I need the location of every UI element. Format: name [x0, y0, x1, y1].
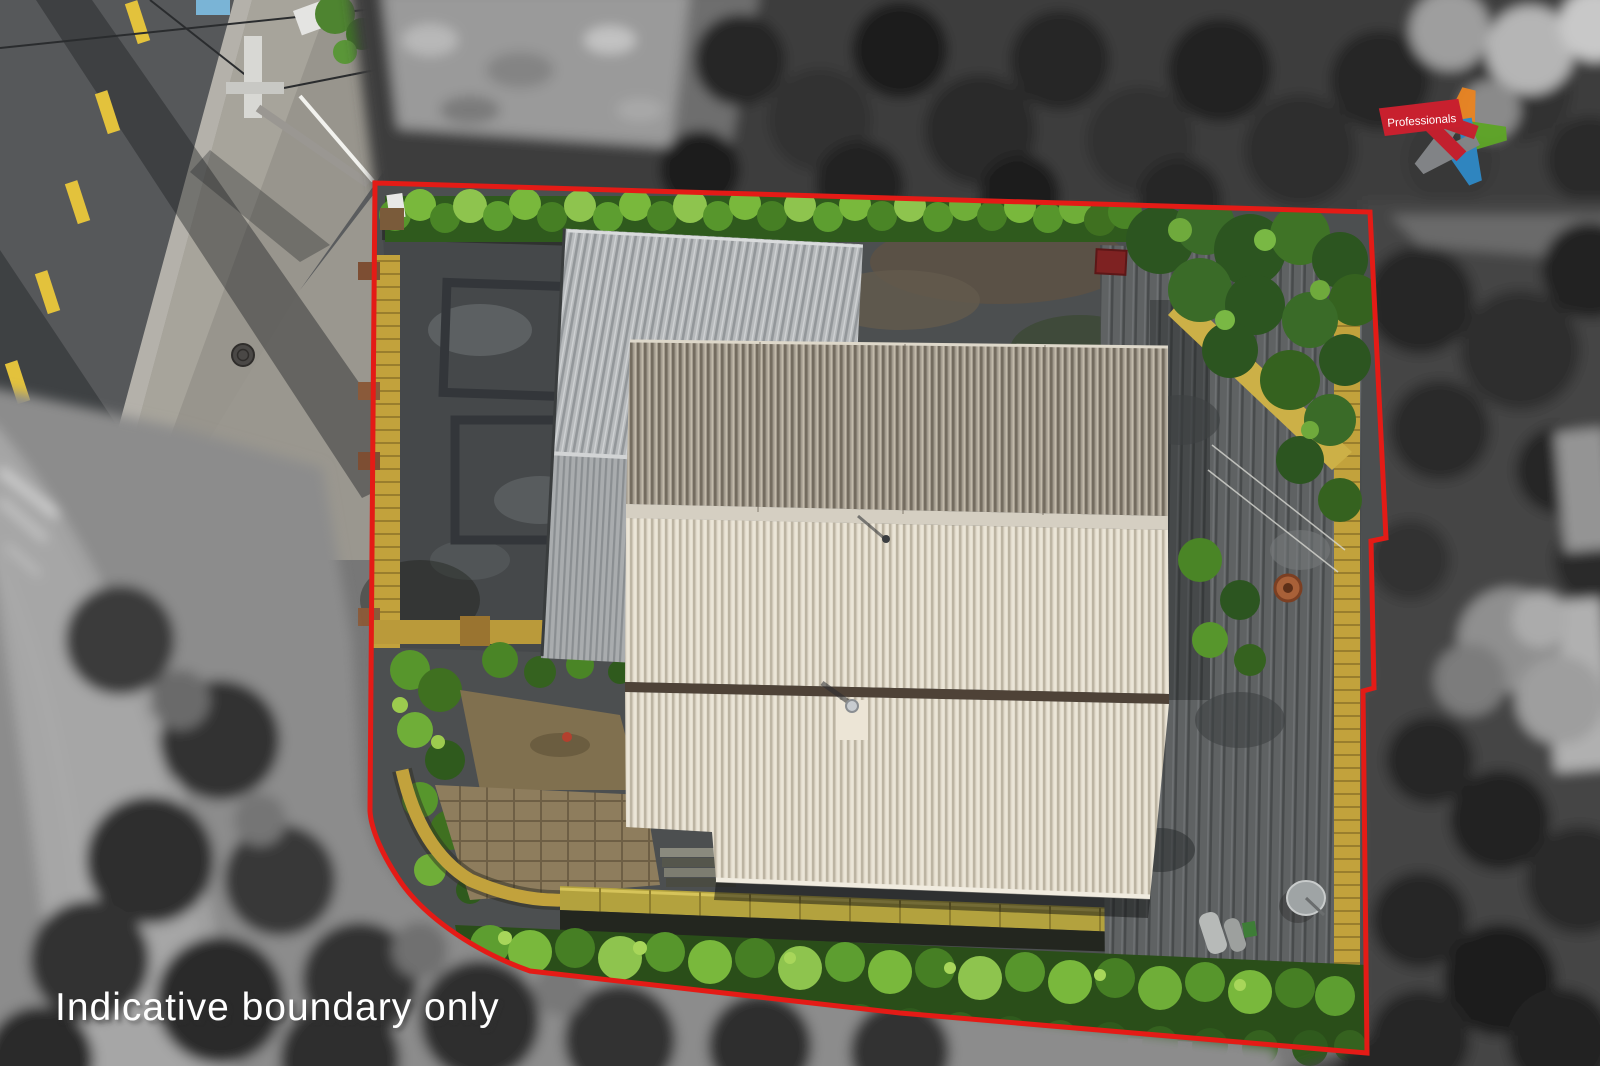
red-bin [1095, 249, 1126, 275]
disclaimer-text: Indicative boundary only [55, 986, 500, 1029]
manhole-cover [232, 344, 254, 366]
disclaimer: Indicative boundary only Indicative boun… [55, 986, 503, 1032]
aerial-photo-canvas: Indicative boundary only Indicative boun… [0, 0, 1600, 1066]
roof-upper-slope [626, 340, 1168, 516]
house-roof [625, 340, 1169, 918]
roof-mid-slope [625, 518, 1169, 694]
aerial-photo: Indicative boundary only Indicative boun… [0, 0, 1600, 1066]
